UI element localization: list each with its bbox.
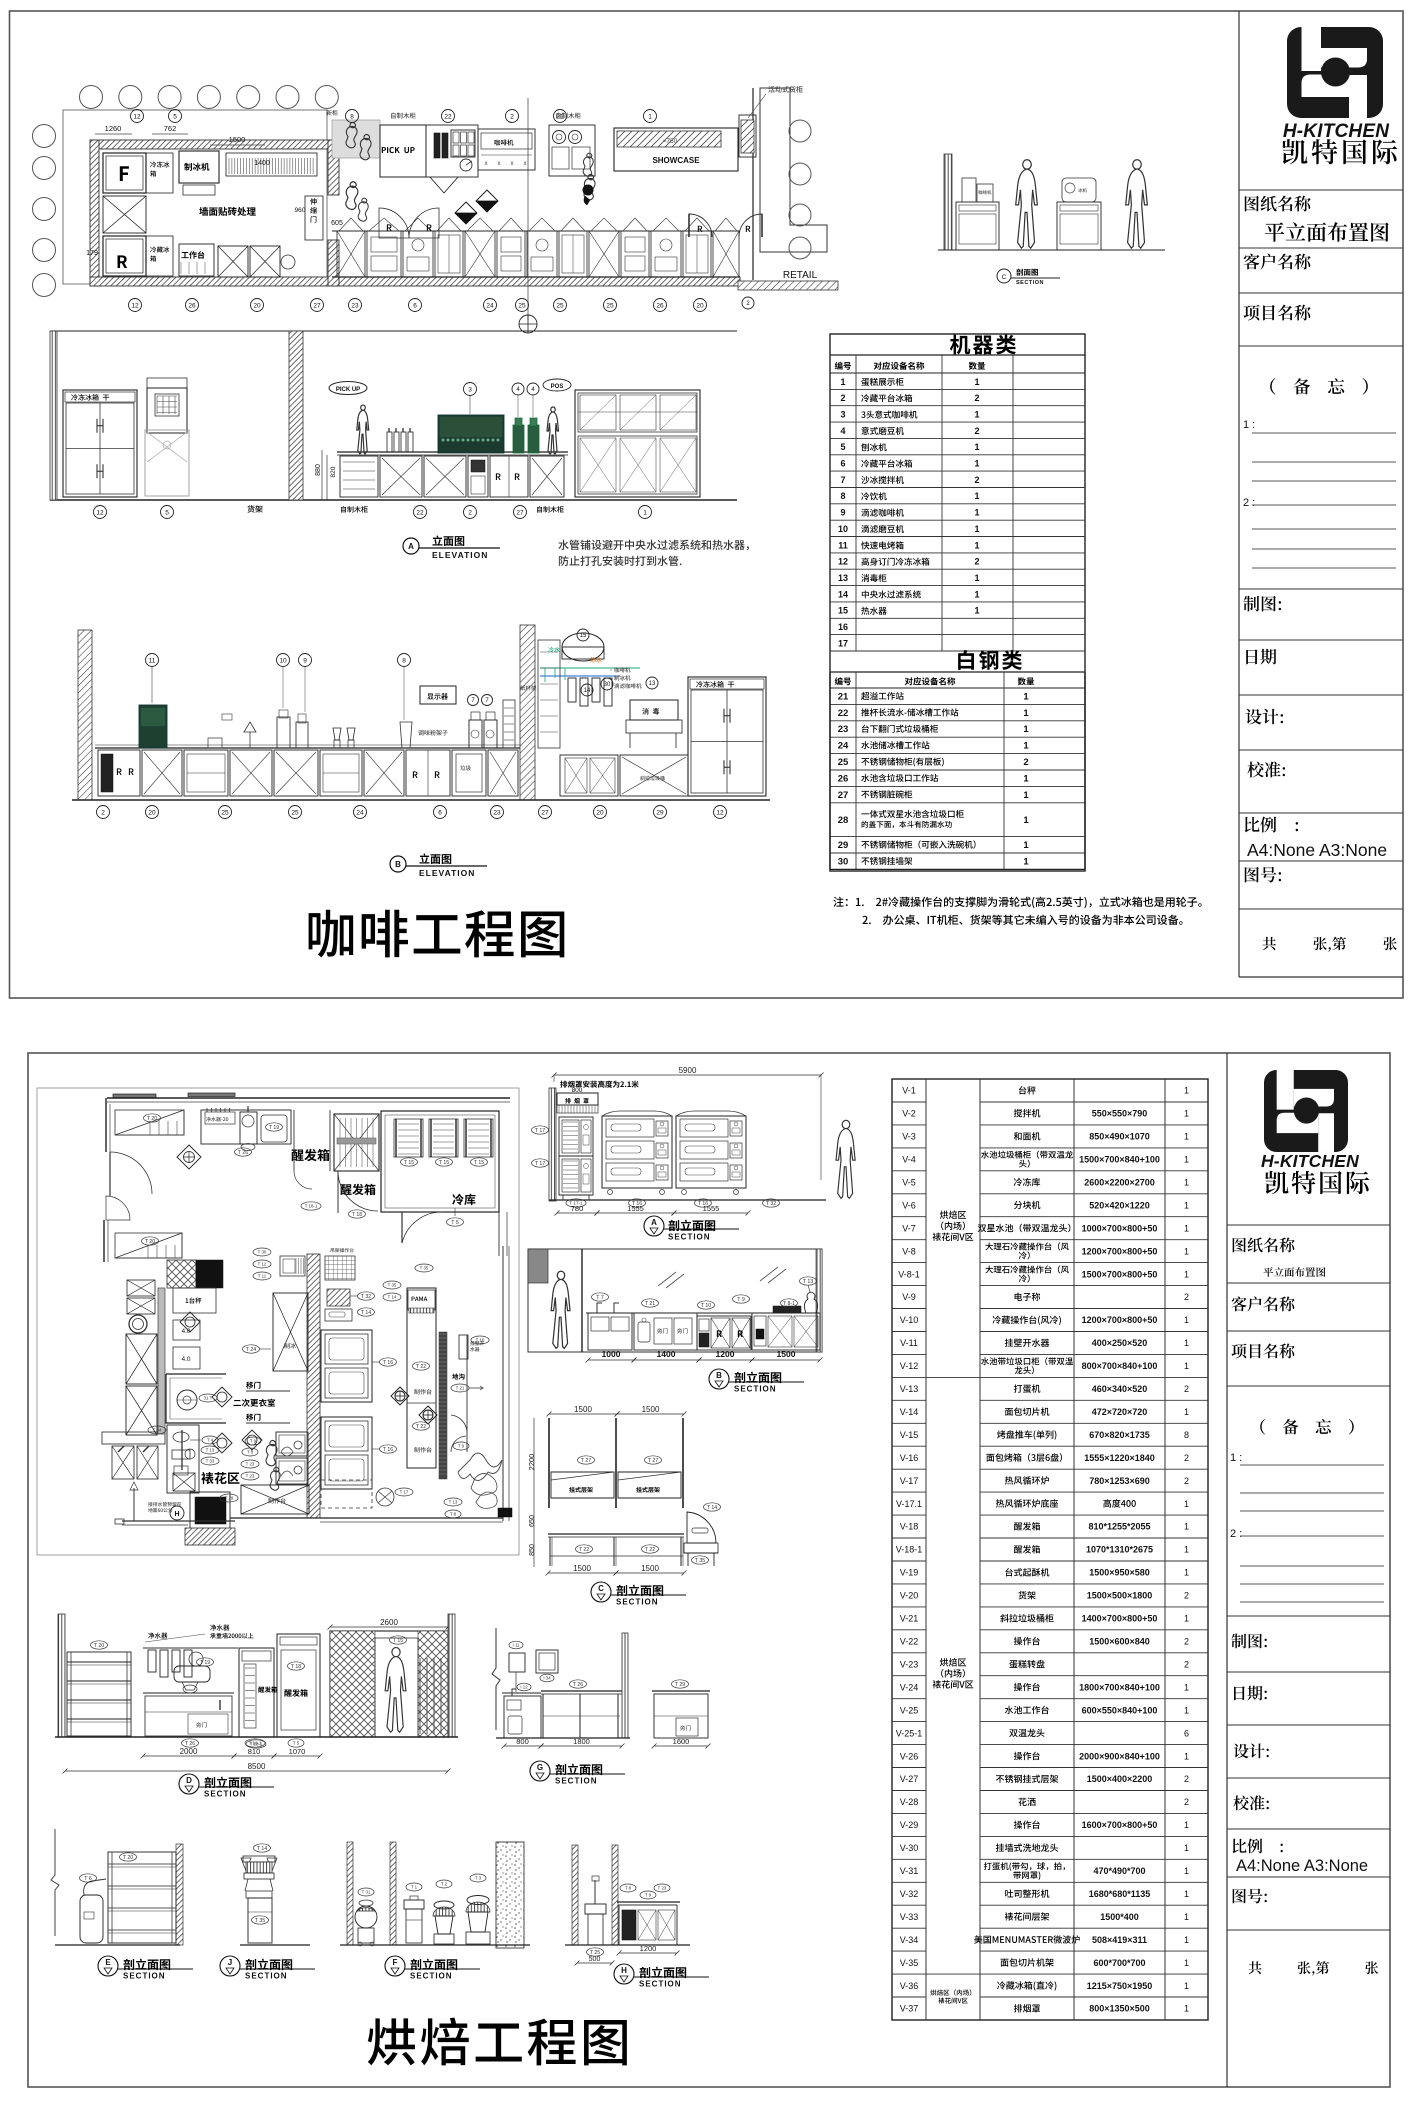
svg-text:T 3: T 3: [475, 1876, 482, 1881]
svg-text:1: 1: [1184, 1178, 1189, 1188]
svg-text:I 34: I 34: [543, 1676, 551, 1681]
svg-text:T 20: T 20: [123, 1855, 133, 1861]
svg-text:T 6: T 6: [84, 1876, 92, 1882]
svg-text:T 8: T 8: [625, 1886, 632, 1891]
svg-text:V-8: V-8: [902, 1246, 916, 1256]
svg-text:T 8: T 8: [450, 1512, 457, 1517]
svg-text:T 22: T 22: [416, 1364, 426, 1370]
svg-text:800: 800: [516, 1737, 529, 1746]
svg-text:A: A: [651, 1218, 657, 1227]
svg-text:E: E: [105, 1958, 111, 1967]
svg-text:600×550×840+100: 600×550×840+100: [1082, 1705, 1158, 1715]
svg-text:T 9: T 9: [645, 1893, 652, 1898]
svg-text:3: 3: [468, 386, 472, 393]
svg-text:22: 22: [838, 708, 849, 719]
svg-text:1: 1: [974, 410, 979, 420]
svg-text:29: 29: [838, 840, 849, 851]
svg-text:1200: 1200: [640, 1944, 657, 1953]
svg-text:23: 23: [838, 724, 849, 735]
svg-text:1 :: 1 :: [1230, 1452, 1242, 1464]
svg-text:I 12: I 12: [520, 1685, 528, 1690]
svg-text:850: 850: [529, 1544, 536, 1556]
svg-text:27: 27: [541, 809, 549, 816]
svg-text:V-29: V-29: [900, 1820, 919, 1830]
svg-text:T 14: T 14: [388, 1295, 397, 1300]
svg-text:8: 8: [1184, 1430, 1189, 1440]
svg-text:1: 1: [1023, 840, 1029, 851]
svg-text:1: 1: [1023, 790, 1029, 801]
svg-text:T 19: T 19: [200, 1660, 210, 1666]
svg-text:1: 1: [1184, 1889, 1189, 1899]
svg-text:T 22: T 22: [645, 1547, 655, 1553]
svg-text:T 9: T 9: [737, 1297, 745, 1303]
svg-text:12: 12: [133, 113, 141, 120]
svg-text:T 19: T 19: [269, 1125, 279, 1131]
svg-text:2: 2: [510, 113, 514, 120]
svg-text:1800×700×840+100: 1800×700×840+100: [1079, 1682, 1160, 1692]
svg-text:T 9: T 9: [458, 1444, 465, 1449]
svg-text:1000×700×800+50: 1000×700×800+50: [1082, 1223, 1158, 1233]
svg-text:762: 762: [164, 124, 177, 133]
svg-text:6: 6: [413, 302, 417, 309]
svg-text:960: 960: [295, 207, 306, 214]
svg-text:1260: 1260: [105, 124, 122, 133]
svg-text:RETAIL: RETAIL: [783, 270, 818, 281]
svg-text:T 23: T 23: [246, 1474, 255, 1479]
svg-text:T 27: T 27: [581, 1458, 591, 1464]
svg-text:T 20: T 20: [94, 1643, 104, 1649]
svg-text:V-12: V-12: [900, 1361, 919, 1371]
svg-text:1500×500×1800: 1500×500×1800: [1087, 1591, 1153, 1601]
svg-text:V-5: V-5: [902, 1178, 916, 1188]
svg-text:SHOWCASE: SHOWCASE: [652, 156, 700, 165]
svg-text:T 10: T 10: [476, 1338, 485, 1343]
svg-text:1: 1: [974, 442, 979, 452]
svg-text:POS: POS: [551, 384, 564, 390]
svg-text:B: B: [395, 860, 401, 869]
svg-text:1500: 1500: [642, 1405, 660, 1414]
svg-text:10: 10: [838, 524, 848, 534]
svg-text:25: 25: [291, 809, 299, 816]
svg-text:500: 500: [589, 1956, 601, 1963]
svg-text:1: 1: [1184, 1086, 1189, 1096]
svg-text:1000: 1000: [602, 1349, 621, 1359]
svg-text:28: 28: [838, 815, 849, 826]
svg-text:1: 1: [1184, 1499, 1189, 1509]
svg-text:T 21: T 21: [645, 1301, 655, 1307]
svg-text:T 5: T 5: [451, 1220, 459, 1226]
svg-text:1500×950×580: 1500×950×580: [1089, 1568, 1150, 1578]
svg-text:T 35: T 35: [255, 1918, 265, 1924]
svg-text:T 9: T 9: [250, 1439, 257, 1444]
svg-text:1: 1: [1023, 856, 1029, 867]
svg-text:1500: 1500: [229, 135, 246, 144]
svg-text:V-3: V-3: [902, 1132, 916, 1142]
svg-text:1: 1: [974, 459, 979, 469]
svg-text:J: J: [228, 1958, 232, 1967]
svg-text:22: 22: [416, 509, 424, 516]
svg-text:1600×700×800+50: 1600×700×800+50: [1082, 1820, 1158, 1830]
svg-text:15: 15: [838, 606, 848, 616]
svg-text:1: 1: [1184, 1223, 1189, 1233]
svg-text:30: 30: [604, 682, 611, 688]
svg-text:1: 1: [840, 377, 845, 387]
svg-text:G: G: [537, 1763, 543, 1772]
svg-text:27: 27: [516, 509, 524, 516]
svg-text:x: x: [511, 161, 514, 167]
svg-text:25: 25: [556, 302, 564, 309]
svg-text:1: 1: [1023, 691, 1029, 702]
svg-text:T 24: T 24: [246, 1347, 256, 1353]
svg-text:T 23: T 23: [246, 1462, 255, 1467]
svg-text:17: 17: [838, 638, 848, 648]
svg-text:670×820×1735: 670×820×1735: [1089, 1430, 1150, 1440]
svg-text:1: 1: [1184, 1269, 1189, 1279]
svg-text:V-31: V-31: [900, 1866, 919, 1876]
svg-text:400×250×520: 400×250×520: [1092, 1338, 1148, 1348]
svg-text:7: 7: [840, 475, 845, 485]
svg-text:2600×2200×2700: 2600×2200×2700: [1084, 1178, 1155, 1188]
svg-text:V-35: V-35: [900, 1958, 919, 1968]
svg-text:C: C: [598, 1584, 604, 1593]
svg-text:2: 2: [1184, 1476, 1189, 1486]
svg-text:T 29: T 29: [675, 1682, 685, 1688]
svg-text:1400×700×800+50: 1400×700×800+50: [1082, 1614, 1158, 1624]
svg-text:T 20: T 20: [147, 1116, 157, 1122]
svg-text:1: 1: [1184, 1820, 1189, 1830]
svg-text:T 22: T 22: [579, 1547, 589, 1553]
svg-text:810*1255*2055: 810*1255*2055: [1088, 1522, 1150, 1532]
svg-text:T 21: T 21: [456, 1386, 465, 1391]
svg-text:16: 16: [838, 622, 848, 632]
svg-text:13: 13: [649, 681, 656, 687]
svg-text:T 34: T 34: [153, 1428, 162, 1433]
svg-text:1 :: 1 :: [1243, 419, 1255, 431]
svg-text:605: 605: [331, 220, 343, 227]
svg-text:T 18: T 18: [291, 1664, 301, 1670]
svg-text:T 26: T 26: [185, 1741, 195, 1747]
svg-text:T 18: T 18: [352, 1212, 362, 1218]
svg-text:2: 2: [101, 809, 105, 816]
svg-text:9: 9: [840, 508, 845, 518]
svg-text:T 35: T 35: [695, 1558, 705, 1564]
svg-text:T 13: T 13: [449, 1500, 458, 1505]
svg-text:5900: 5900: [679, 1066, 697, 1075]
svg-text:T 14: T 14: [257, 1846, 267, 1852]
svg-text:1: 1: [1184, 1568, 1189, 1578]
svg-text:x: x: [524, 161, 527, 167]
svg-text:1: 1: [1184, 1751, 1189, 1761]
svg-text:1: 1: [1184, 1866, 1189, 1876]
svg-text:1: 1: [974, 377, 979, 387]
svg-text:T 16: T 16: [383, 1447, 393, 1453]
svg-text:5: 5: [173, 113, 177, 120]
svg-text:V-30: V-30: [900, 1843, 919, 1853]
svg-text:V-25-1: V-25-1: [896, 1728, 923, 1738]
svg-text:1: 1: [643, 509, 647, 516]
svg-text:SECTION: SECTION: [555, 1777, 598, 1786]
svg-text:1: 1: [1023, 741, 1029, 752]
svg-text:T 11: T 11: [258, 1274, 267, 1279]
svg-text:20: 20: [596, 809, 604, 816]
svg-text:2 :: 2 :: [1230, 1528, 1242, 1540]
svg-text:1: 1: [974, 540, 979, 550]
svg-text:810: 810: [248, 1747, 261, 1756]
svg-text:T 32: T 32: [766, 1201, 776, 1207]
svg-text:20: 20: [696, 302, 704, 309]
svg-text:T 17: T 17: [535, 1161, 545, 1167]
svg-text:1: 1: [1184, 1132, 1189, 1142]
svg-text:2: 2: [1184, 1292, 1189, 1302]
svg-text:1215×750×1950: 1215×750×1950: [1087, 1981, 1153, 1991]
svg-text:13: 13: [838, 573, 848, 583]
svg-text:V-7: V-7: [902, 1223, 916, 1233]
svg-text:4: 4: [840, 426, 845, 436]
svg-text:2: 2: [1184, 1384, 1189, 1394]
svg-text:T 20: T 20: [145, 1239, 155, 1245]
svg-text:179: 179: [86, 250, 98, 257]
svg-text:29: 29: [656, 809, 664, 816]
svg-text:2: 2: [1184, 1660, 1189, 1670]
svg-text:1: 1: [974, 589, 979, 599]
svg-text:T 35: T 35: [388, 1283, 397, 1288]
svg-text:1500*400: 1500*400: [1100, 1912, 1139, 1922]
svg-text:2600: 2600: [380, 1618, 398, 1627]
svg-text:23: 23: [351, 302, 359, 309]
svg-text:1: 1: [1184, 1315, 1189, 1325]
svg-text:ELEVATION: ELEVATION: [419, 868, 475, 878]
svg-text:472×720×720: 472×720×720: [1092, 1407, 1148, 1417]
svg-text:11: 11: [149, 657, 156, 664]
svg-text:V-23: V-23: [900, 1660, 919, 1670]
svg-text:5: 5: [165, 509, 169, 516]
svg-text:1070*1310*2675: 1070*1310*2675: [1086, 1545, 1153, 1555]
svg-text:6: 6: [438, 809, 442, 816]
svg-text:V-34: V-34: [900, 1935, 919, 1945]
svg-text:2: 2: [840, 393, 845, 403]
svg-text:11: 11: [838, 540, 848, 550]
svg-text:2200: 2200: [527, 1454, 536, 1471]
svg-text:31 T: 31 T: [204, 1396, 213, 1401]
svg-text:1: 1: [1184, 1200, 1189, 1210]
svg-text:V-21: V-21: [900, 1614, 919, 1624]
svg-text:27: 27: [838, 790, 849, 801]
svg-text:1: 1: [1184, 1338, 1189, 1348]
svg-text:V-11: V-11: [900, 1338, 918, 1348]
svg-text:A4:None A3:None: A4:None A3:None: [1247, 840, 1387, 860]
svg-text:1200×700×800+50: 1200×700×800+50: [1082, 1246, 1158, 1256]
svg-text:T 17: T 17: [400, 1490, 409, 1495]
svg-text:V-37: V-37: [900, 2004, 919, 2014]
svg-text:1: 1: [1184, 1407, 1189, 1417]
svg-text:24: 24: [356, 809, 364, 816]
svg-text:8: 8: [840, 491, 845, 501]
svg-text:T 12: T 12: [258, 1262, 267, 1267]
svg-text:SECTION: SECTION: [1016, 280, 1044, 286]
svg-text:PICK UP: PICK UP: [336, 387, 360, 393]
svg-text:2: 2: [1023, 757, 1028, 768]
svg-text:1: 1: [1184, 1935, 1189, 1945]
svg-text:8: 8: [402, 657, 406, 664]
svg-text:T 8-1: T 8-1: [783, 1301, 795, 1307]
svg-text:9: 9: [303, 657, 307, 664]
svg-text:ELEVATION: ELEVATION: [432, 550, 488, 560]
svg-text:460×340×520: 460×340×520: [1092, 1384, 1148, 1394]
svg-text:25: 25: [606, 302, 614, 309]
svg-text:2: 2: [1184, 1453, 1189, 1463]
svg-text:1400: 1400: [657, 1349, 676, 1359]
svg-text:12: 12: [716, 809, 724, 816]
svg-text:1555: 1555: [627, 1204, 644, 1213]
svg-text:1500: 1500: [573, 1564, 591, 1573]
svg-text:1070: 1070: [289, 1747, 306, 1756]
svg-text:SECTION: SECTION: [734, 1385, 777, 1394]
svg-text:2: 2: [1184, 1591, 1189, 1601]
svg-text:T 8: T 8: [247, 1450, 254, 1455]
svg-text:V-10: V-10: [900, 1315, 919, 1325]
svg-text:2: 2: [974, 557, 979, 567]
svg-text:780: 780: [571, 1204, 584, 1213]
svg-text:30: 30: [838, 856, 849, 867]
svg-text:1: 1: [1184, 1981, 1189, 1991]
svg-text:A: A: [408, 542, 414, 551]
svg-text:V-28: V-28: [900, 1797, 919, 1807]
svg-text:SECTION: SECTION: [204, 1790, 247, 1799]
svg-text:SECTION: SECTION: [245, 1972, 288, 1981]
svg-text:2: 2: [1184, 1637, 1189, 1647]
svg-text:V-22: V-22: [900, 1637, 919, 1647]
svg-text:1: 1: [1184, 1155, 1189, 1165]
svg-text:26: 26: [838, 773, 849, 784]
svg-text:V-32: V-32: [900, 1889, 919, 1899]
svg-text:V-24: V-24: [900, 1682, 919, 1692]
svg-text:T 31: T 31: [362, 1890, 371, 1895]
svg-text:T 15: T 15: [474, 1160, 484, 1166]
svg-text:SECTION: SECTION: [639, 1980, 682, 1989]
svg-text:1680*680*1135: 1680*680*1135: [1089, 1889, 1151, 1899]
svg-text:T 2: T 2: [441, 1882, 448, 1887]
svg-text:25: 25: [221, 809, 229, 816]
svg-text:520×420×1220: 520×420×1220: [1089, 1200, 1150, 1210]
svg-text:12: 12: [96, 509, 104, 516]
svg-text:V-20: V-20: [900, 1591, 919, 1601]
svg-text:27: 27: [313, 302, 321, 309]
svg-text:14: 14: [584, 688, 591, 694]
svg-text:1: 1: [974, 524, 979, 534]
svg-text:V-16: V-16: [900, 1453, 919, 1463]
svg-text:1600: 1600: [673, 1737, 690, 1746]
svg-text:1: 1: [1184, 2004, 1189, 2014]
svg-text:T 14: T 14: [361, 1310, 371, 1316]
svg-text:T 30: T 30: [258, 1250, 267, 1255]
svg-text:1500: 1500: [641, 1564, 659, 1573]
svg-text:1: 1: [1184, 1843, 1189, 1853]
svg-text:V-4: V-4: [902, 1155, 916, 1165]
svg-text:1: 1: [1184, 1246, 1189, 1256]
svg-text:V-26: V-26: [900, 1751, 919, 1761]
svg-text:2: 2: [1184, 1774, 1189, 1784]
svg-text:1500: 1500: [777, 1349, 796, 1359]
svg-text:1555: 1555: [703, 1204, 720, 1213]
svg-text:2: 2: [974, 475, 979, 485]
svg-text:A4:None A3:None: A4:None A3:None: [1236, 1857, 1368, 1875]
svg-text:15: 15: [580, 633, 587, 639]
svg-text:800×1350×500: 800×1350×500: [1089, 2004, 1150, 2014]
svg-text:V-15: V-15: [900, 1430, 919, 1440]
svg-text:T 15: T 15: [439, 1160, 449, 1166]
svg-text:1500×700×840+100: 1500×700×840+100: [1079, 1155, 1160, 1165]
svg-text:V-6: V-6: [902, 1200, 916, 1210]
svg-text:1: 1: [1184, 1361, 1189, 1371]
svg-text:1: 1: [1023, 708, 1029, 719]
svg-text:2: 2: [974, 426, 979, 436]
svg-text:1: 1: [1184, 1545, 1189, 1555]
svg-text:2: 2: [1184, 1797, 1189, 1807]
svg-text:V-27: V-27: [900, 1774, 919, 1784]
svg-text:600*700*700: 600*700*700: [1093, 1958, 1145, 1968]
svg-text:14: 14: [838, 589, 848, 599]
svg-text:2: 2: [468, 509, 472, 516]
svg-text:H: H: [174, 1511, 179, 1518]
svg-text:T 16: T 16: [383, 1360, 393, 1366]
svg-text:1400: 1400: [254, 160, 270, 167]
svg-text:T 15: T 15: [393, 1638, 403, 1644]
svg-text:T 26: T 26: [238, 1150, 248, 1156]
svg-text:850×490×1070: 850×490×1070: [1089, 1132, 1150, 1142]
svg-text:C: C: [1002, 274, 1007, 281]
svg-text:21: 21: [838, 691, 849, 702]
svg-text:V-36: V-36: [900, 1981, 919, 1991]
svg-text:4.0: 4.0: [181, 1356, 190, 1363]
svg-text:SECTION: SECTION: [668, 1233, 711, 1242]
svg-text:12: 12: [131, 302, 139, 309]
svg-text:23: 23: [493, 809, 501, 816]
svg-text:T 10: T 10: [701, 1303, 711, 1309]
svg-text:820: 820: [330, 466, 337, 477]
svg-text:1500×600×840: 1500×600×840: [1089, 1637, 1150, 1647]
svg-text:25: 25: [518, 302, 526, 309]
svg-text:T 33: T 33: [206, 1459, 215, 1464]
svg-text:1: 1: [1023, 773, 1029, 784]
svg-text:V-8-1: V-8-1: [898, 1269, 920, 1279]
svg-text:1: 1: [1184, 1958, 1189, 1968]
svg-text:1: 1: [1184, 1912, 1189, 1922]
svg-text:6: 6: [1184, 1728, 1189, 1738]
svg-text:1: 1: [1023, 815, 1029, 826]
svg-text:T 23: T 23: [658, 1886, 667, 1891]
svg-text:T 18-1: T 18-1: [249, 1741, 262, 1746]
svg-text:1500: 1500: [574, 1405, 592, 1414]
svg-text:H-KITCHEN: H-KITCHEN: [1283, 121, 1390, 142]
svg-text:T 22: T 22: [416, 1424, 426, 1430]
svg-text:880: 880: [315, 464, 322, 476]
svg-text:1200: 1200: [716, 1349, 735, 1359]
svg-text:2000×900×840+100: 2000×900×840+100: [1079, 1751, 1160, 1761]
svg-text:26: 26: [188, 302, 196, 309]
svg-text:T 13: T 13: [206, 1448, 215, 1453]
svg-text:22: 22: [444, 113, 452, 120]
svg-text:470*490*700: 470*490*700: [1093, 1866, 1145, 1876]
svg-text:T 26: T 26: [573, 1682, 583, 1688]
svg-text:8: 8: [350, 113, 354, 120]
svg-text:T 25: T 25: [590, 1950, 600, 1956]
svg-text:1200×700×800+50: 1200×700×800+50: [1082, 1315, 1158, 1325]
svg-text:B: B: [716, 1371, 722, 1380]
svg-text:T 18-1: T 18-1: [305, 1204, 318, 1209]
svg-text:D: D: [186, 1776, 192, 1785]
svg-text:H-KITCHEN: H-KITCHEN: [1261, 1151, 1359, 1171]
svg-text:1555×1220×1840: 1555×1220×1840: [1084, 1453, 1155, 1463]
